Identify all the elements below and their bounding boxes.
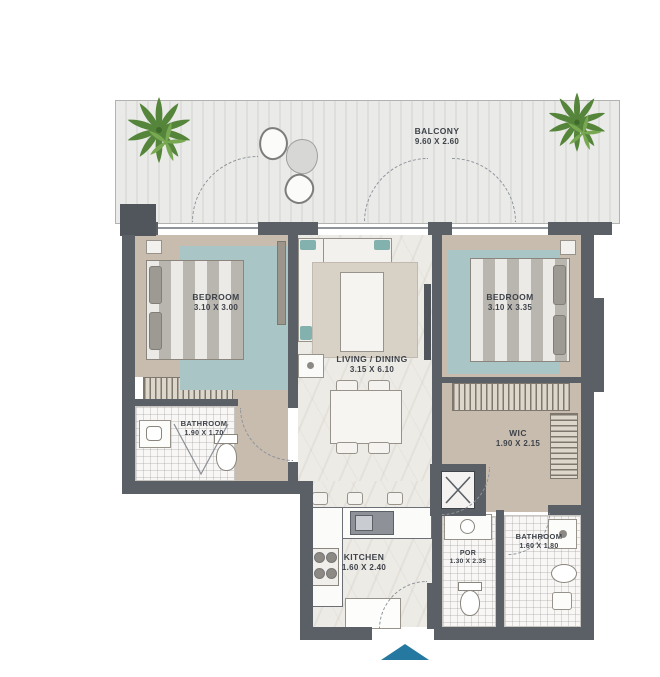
palm-plant-icon <box>541 90 613 158</box>
burner <box>326 568 337 579</box>
pillow <box>149 266 162 304</box>
burner <box>326 552 337 563</box>
living-dining-dims: 3.15 X 6.10 <box>336 365 407 375</box>
toilet <box>460 590 480 616</box>
wall-interior <box>135 399 238 406</box>
basin <box>551 564 577 583</box>
living-dining-label: LIVING / DINING 3.15 X 6.10 <box>336 354 407 375</box>
nightstand <box>146 240 162 254</box>
dining-table <box>330 390 402 444</box>
pillow <box>553 265 566 305</box>
dining-chair <box>336 442 358 454</box>
sliding-door-panel <box>277 241 286 325</box>
kitchen-dims: 1.60 X 2.40 <box>342 563 386 573</box>
wall-segment <box>258 222 318 235</box>
bathroom-right-label: BATHROOM 1.60 X 1.80 <box>516 532 563 551</box>
wall-bottom <box>434 627 594 640</box>
bathroom-right-dims: 1.60 X 1.80 <box>516 542 563 551</box>
balcony-name: BALCONY <box>415 126 460 137</box>
wall-interior <box>548 505 594 515</box>
sofa-cushion <box>374 240 390 250</box>
bar-stool <box>387 492 403 505</box>
pillow <box>553 315 566 355</box>
wall-bottom-left <box>122 481 313 494</box>
balcony-dims: 9.60 X 2.60 <box>415 137 460 147</box>
pillow <box>149 312 162 350</box>
por-dims: 1.30 X 2.35 <box>450 558 487 566</box>
bar-stool <box>347 492 363 505</box>
bedroom-left-label: BEDROOM 3.10 X 3.00 <box>192 292 239 313</box>
balcony-label: BALCONY 9.60 X 2.60 <box>415 126 460 147</box>
burner <box>314 568 325 579</box>
wall-interior <box>288 462 298 481</box>
sink-bowl <box>355 515 373 531</box>
floor-plan: BALCONY 9.60 X 2.60 BEDROOM 3.10 X 3.00 … <box>0 0 660 677</box>
bedroom-right-dims: 3.10 X 3.35 <box>486 303 533 313</box>
wic-dims: 1.90 X 2.15 <box>496 439 540 449</box>
wall-lower-left <box>300 481 313 640</box>
wall-segment <box>428 222 452 235</box>
wall-interior <box>496 510 504 627</box>
wic-name: WIC <box>496 428 540 439</box>
side-table-dot <box>307 362 314 369</box>
entry-arrow-icon <box>381 644 429 660</box>
bedroom-left-dims: 3.10 X 3.00 <box>192 303 239 313</box>
dining-chair <box>368 442 390 454</box>
bedroom-left-name: BEDROOM <box>192 292 239 303</box>
basin <box>146 426 162 441</box>
nightstand <box>560 240 576 255</box>
bedroom-right-name: BEDROOM <box>486 292 533 303</box>
wall-interior <box>432 235 442 467</box>
bathroom-cabinet <box>552 592 572 610</box>
wall-interior <box>442 377 594 383</box>
bathroom-left-dims: 1.90 X 1.70 <box>181 429 228 438</box>
living-dining-name: LIVING / DINING <box>336 354 407 365</box>
coffee-table <box>340 272 384 352</box>
basin <box>460 519 475 534</box>
wardrobe-wic-side <box>550 413 578 479</box>
bathroom-left-label: BATHROOM 1.90 X 1.70 <box>181 419 228 438</box>
wall-bottom <box>300 627 372 640</box>
por-name: POR <box>450 549 487 558</box>
entry-door-leaf <box>427 583 434 629</box>
sofa-cushion <box>300 240 316 250</box>
wall-right <box>581 222 594 640</box>
bar-stool <box>312 492 328 505</box>
burner <box>314 552 325 563</box>
palm-plant-icon <box>112 88 207 173</box>
tv-unit <box>424 284 431 360</box>
por-label: POR 1.30 X 2.35 <box>450 549 487 567</box>
wall-interior <box>288 235 298 408</box>
wall-left <box>122 235 135 494</box>
window-track <box>158 227 548 229</box>
bathroom-right-name: BATHROOM <box>516 532 563 542</box>
wardrobe-wic-top <box>452 383 570 411</box>
kitchen-name: KITCHEN <box>342 552 386 563</box>
column <box>120 204 156 236</box>
bedroom-right-label: BEDROOM 3.10 X 3.35 <box>486 292 533 313</box>
kitchen-label: KITCHEN 1.60 X 2.40 <box>342 552 386 573</box>
bathroom-left-name: BATHROOM <box>181 419 228 429</box>
sofa-cushion <box>300 326 312 340</box>
wic-label: WIC 1.90 X 2.15 <box>496 428 540 449</box>
wall-segment <box>548 222 612 235</box>
